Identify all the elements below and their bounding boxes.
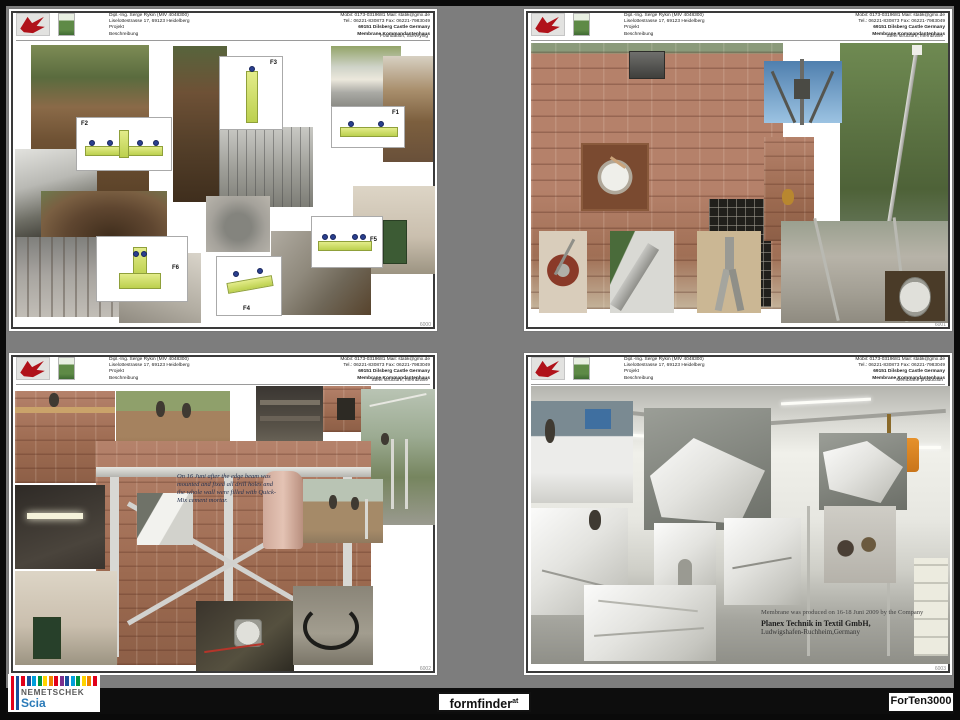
scia-wordmark: Scia: [21, 697, 97, 709]
note-line-1: Membrane was produced on 16-18 Juni 2009…: [761, 609, 943, 616]
slide-background: Dipl.-Ing. Serge Rykin (MIV 4048300) Lis…: [6, 6, 954, 714]
project-photo-thumb: [573, 357, 590, 380]
description-label: Beschreibung: [624, 376, 705, 382]
forten-wordmark: ForTen3000: [891, 695, 952, 707]
sheet-foundation: Dipl.-Ing. Serge Rykin (MIV 4048300) Lis…: [8, 8, 438, 332]
photo-detail-wall-bracket: [610, 231, 674, 313]
sheet-number: 6000: [420, 322, 431, 328]
project-photo-thumb: [58, 13, 75, 36]
title-block: Dipl.-Ing. Serge Rykin (MIV 4048300) Lis…: [16, 357, 430, 382]
title-block: Dipl.-Ing. Serge Rykin (MIV 4048300) Lis…: [16, 13, 430, 38]
title-block-rule: [531, 384, 945, 385]
cad-anchor-f3: F3: [219, 56, 283, 130]
sheet-membrane-production: Dipl.-Ing. Serge Rykin (MIV 4048300) Lis…: [523, 352, 953, 676]
photo-membrane-piece-right: [819, 433, 907, 510]
photo-courtyard-guys: [781, 221, 948, 323]
photo-courtyard-lower: [15, 571, 117, 665]
nemetschek-flag-bars: [11, 676, 19, 710]
title-block: Dipl.-Ing. Serge Rykin (MIV 4048300) Lis…: [531, 13, 945, 38]
formfinder-tld: at: [512, 698, 518, 705]
title-block-rule: [16, 40, 430, 41]
anchor-label-f1: F1: [392, 110, 399, 116]
engineer-logo-icon: [16, 13, 50, 36]
description-label: Beschreibung: [624, 32, 705, 38]
photo-cellar-lamp: [15, 485, 105, 569]
sheet-subtitle: Steel structure, membrane: [886, 34, 943, 39]
anchor-label-f2: F2: [81, 121, 88, 127]
photo-membrane-corner-piece: [724, 518, 801, 605]
construction-note: On 16 Juni after the edge beam was mount…: [177, 473, 281, 506]
engineer-info: Dipl.-Ing. Serge Rykin (MIV 4048300) Lis…: [109, 357, 190, 382]
anchor-label-f4: F4: [243, 306, 250, 312]
anchor-label-f3: F3: [270, 60, 277, 66]
title-block-rule: [531, 40, 945, 41]
sheet-number: 6002: [420, 666, 431, 672]
cad-anchor-f5: F5: [311, 216, 383, 268]
engineer-info: Dipl.-Ing. Serge Rykin (MIV 4048300) Lis…: [624, 13, 705, 38]
engineer-logo-icon: [16, 357, 50, 380]
project-photo-thumb: [573, 13, 590, 36]
sheet-number: 6001: [935, 322, 946, 328]
formfinder-logo: formfinderat: [437, 692, 531, 712]
engineer-info: Dipl.-Ing. Serge Rykin (MIV 4048300) Lis…: [109, 13, 190, 38]
photo-detail-anchor-bowl: [539, 231, 587, 313]
photo-detail-fork-fitting: [697, 231, 761, 313]
photo-membrane-folded: [584, 585, 716, 661]
engineer-logo-icon: [531, 13, 565, 36]
formfinder-wordmark: formfinder: [450, 697, 513, 711]
cad-anchor-f1: F1: [331, 106, 405, 148]
title-block-rule: [16, 384, 430, 385]
photo-workers-kneeling: [824, 506, 896, 583]
cad-anchor-f6: F6: [96, 236, 188, 302]
engineer-info: Dipl.-Ing. Serge Rykin (MIV 4048300) Lis…: [624, 357, 705, 382]
description-label: Beschreibung: [109, 376, 190, 382]
sheet-subtitle: Foundation, Surveying: [380, 34, 428, 39]
sheet-edge-beam: Dipl.-Ing. Serge Rykin (MIV 4048300) Lis…: [8, 352, 438, 676]
nemetschek-bars: [21, 676, 97, 686]
photo-workers-scaffold: [303, 479, 383, 543]
hall-window: [914, 558, 948, 656]
forten3000-logo: ForTen3000: [888, 692, 954, 712]
note-line-2: Planex Technik in Textil GmbH,: [761, 619, 943, 628]
sheet-steel-structure: Dipl.-Ing. Serge Rykin (MIV 4048300) Lis…: [523, 8, 953, 332]
note-line-3: Ludwigshafen-Ruchheim,Germany: [761, 628, 943, 636]
engineer-logo-icon: [531, 357, 565, 380]
sheet-subtitle: Steel structure, membrane: [371, 378, 428, 383]
photo-roof-underside: [256, 386, 323, 444]
membrane-production-note: Membrane was produced on 16-18 Juni 2009…: [761, 609, 943, 636]
photo-round-pit: [206, 196, 270, 252]
photo-pipe-gravel: [293, 586, 373, 665]
sheet-number: 6003: [935, 666, 946, 672]
photo-rebar-slab: [219, 127, 313, 207]
photo-worker-machine: [531, 401, 633, 503]
anchor-label-f6: F6: [172, 265, 179, 271]
photo-anchor-plate-dark: [196, 601, 294, 671]
photo-membrane-cutting-floor: [644, 408, 771, 530]
cad-anchor-f4: F4: [216, 256, 282, 316]
photo-mast-head-detail: [764, 61, 842, 123]
nemetschek-scia-logo: NEMETSCHEK Scia: [8, 674, 100, 712]
sheet-subtitle: Membrane production: [896, 378, 943, 383]
cad-anchor-f2: F2: [76, 117, 172, 171]
project-photo-thumb: [58, 357, 75, 380]
description-label: Beschreibung: [109, 32, 190, 38]
title-block: Dipl.-Ing. Serge Rykin (MIV 4048300) Lis…: [531, 357, 945, 382]
